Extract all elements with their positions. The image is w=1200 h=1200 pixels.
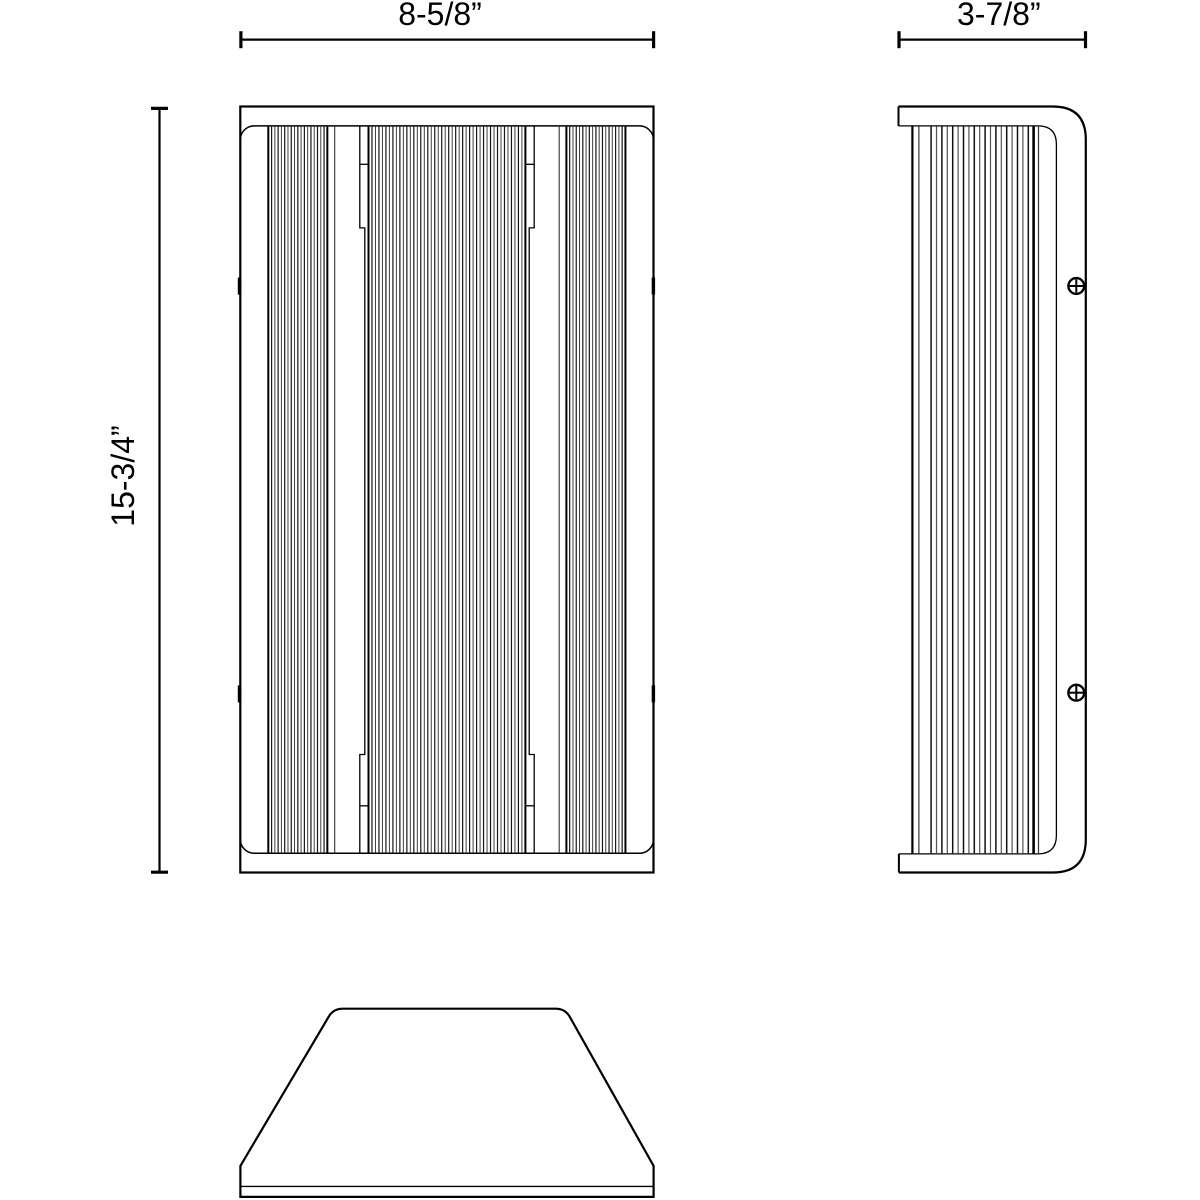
svg-text:15-3/4”: 15-3/4” (105, 425, 141, 526)
svg-text:8-5/8”: 8-5/8” (398, 0, 482, 32)
svg-text:3-7/8”: 3-7/8” (957, 0, 1041, 32)
